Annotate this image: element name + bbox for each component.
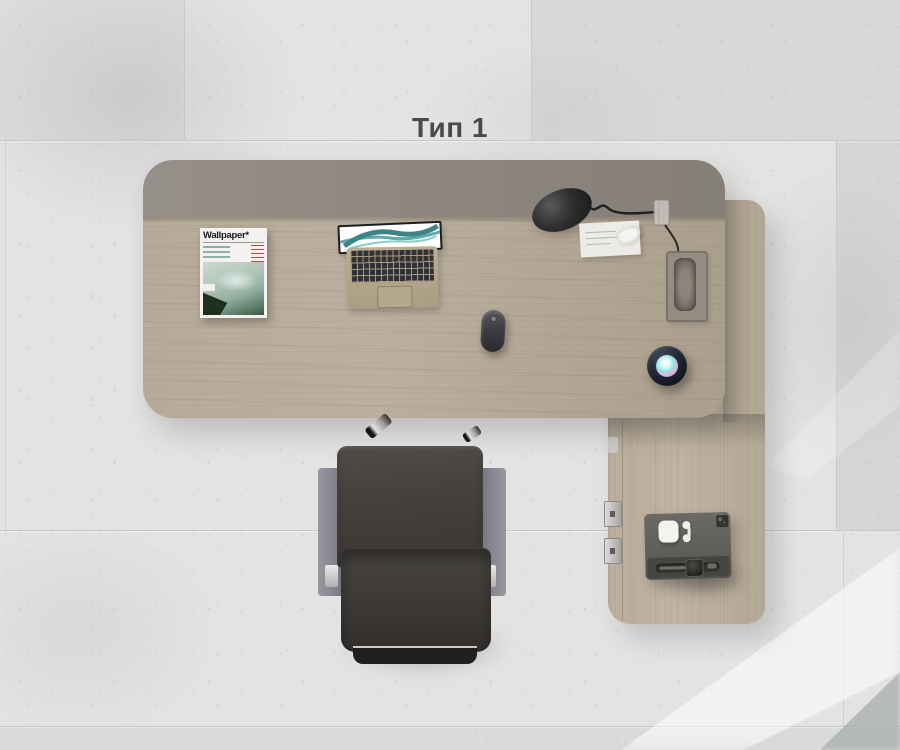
magazine: Wallpaper* — [200, 228, 267, 318]
shadow — [723, 200, 743, 422]
cover-label — [203, 284, 215, 291]
device-camera — [716, 515, 728, 527]
device-pen — [659, 566, 685, 570]
airpods-earbud — [682, 521, 690, 529]
cable-grommet — [666, 251, 708, 322]
cabinet-hinge — [604, 501, 622, 527]
chair-base — [353, 646, 477, 664]
device-knob — [685, 559, 703, 577]
corner-shadow — [800, 650, 900, 750]
magazine-rule — [203, 242, 264, 243]
airpods-case — [658, 520, 679, 543]
product-render-scene: Тип 1 Wallpaper* — [0, 0, 900, 750]
light-streak — [750, 310, 900, 480]
page-title: Тип 1 — [0, 112, 900, 144]
siri-orb — [656, 355, 678, 377]
tile-tone — [836, 140, 900, 532]
cover-mist — [215, 270, 259, 292]
cabinet-bracket — [608, 437, 618, 453]
grommet-slot — [674, 258, 696, 311]
chair-seat — [341, 548, 491, 652]
laptop-trackpad — [377, 286, 412, 309]
device-tray — [647, 556, 729, 578]
magazine-cover-image — [203, 262, 264, 315]
floor-smudge — [0, 520, 220, 740]
chair-frame-chrome — [364, 413, 392, 440]
device-body — [644, 512, 732, 580]
desk-device — [644, 512, 736, 586]
tile-joint — [0, 726, 900, 727]
magazine-masthead: Wallpaper* — [203, 230, 249, 241]
tile-joint — [5, 140, 6, 530]
tile-joint — [843, 532, 844, 726]
magazine-headline-lines — [203, 246, 230, 261]
laptop-body — [346, 246, 438, 309]
tile-joint — [836, 140, 837, 532]
smart-speaker — [647, 346, 687, 386]
airpods-earbud — [683, 534, 691, 542]
tile-tone — [0, 726, 900, 750]
chair-frame-chrome — [462, 425, 483, 443]
cabinet-seam — [622, 420, 623, 620]
computer-mouse — [480, 309, 506, 352]
cabinet-hinge — [604, 538, 622, 564]
laptop-keyboard — [351, 249, 435, 282]
chair-chrome-foot — [325, 565, 338, 587]
office-chair — [315, 415, 515, 670]
device-button — [707, 563, 716, 568]
